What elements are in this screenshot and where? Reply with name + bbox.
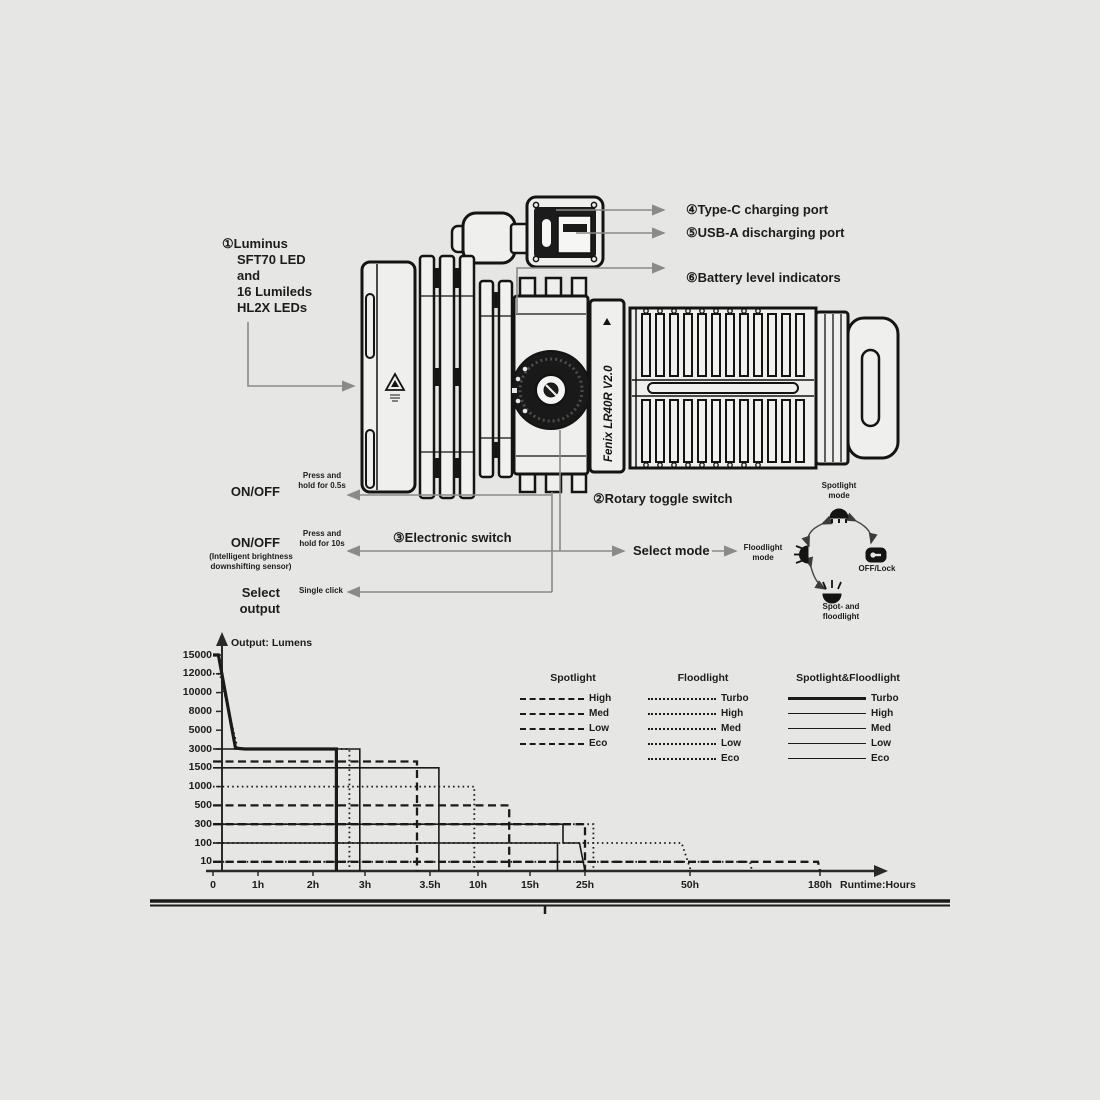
- rotary-toggle-dial: [512, 351, 590, 429]
- legend-entry: High: [520, 691, 626, 706]
- legend-swatch-dashed: [520, 698, 584, 700]
- legend-group-title: Spotlight: [520, 672, 626, 684]
- hold2-note: Press andhold for 10s: [294, 529, 350, 549]
- legend-entry: High: [788, 706, 908, 721]
- diagram-art: Fenix LR40R V2.0: [0, 0, 1100, 1100]
- legend-group-floodlight: FloodlightTurboHighMedLowEco: [648, 672, 758, 766]
- type-c-port-icon: [542, 219, 551, 247]
- y-tick-label: 10: [168, 855, 212, 868]
- x-tick-label: 180h: [802, 879, 838, 892]
- y-tick-label: 8000: [168, 705, 212, 718]
- onoff1-label: ON/OFF: [180, 484, 280, 500]
- electronic-callout: ③Electronic switch: [393, 530, 512, 546]
- legend-entry-label: Med: [871, 723, 891, 734]
- chart-axes: [206, 632, 888, 877]
- charging-module: [452, 197, 603, 267]
- dial-offlock-label: OFF/Lock: [846, 564, 908, 574]
- x-tick-label: 3h: [347, 879, 383, 892]
- legend-swatch-dotted: [648, 698, 716, 700]
- legend-entry-label: Low: [589, 723, 609, 734]
- legend-swatch-solid: [788, 758, 866, 759]
- led-callout-line3: and: [237, 268, 260, 284]
- x-tick-label: 10h: [460, 879, 496, 892]
- legend-entry: Low: [648, 736, 758, 751]
- series-line-spotlight-floodlight-med: [213, 768, 439, 871]
- legend-entry: Turbo: [648, 691, 758, 706]
- legend-entry-label: Eco: [721, 753, 739, 764]
- x-tick-label: 1h: [240, 879, 276, 892]
- legend-entry: Eco: [788, 751, 908, 766]
- legend-entry-label: Med: [589, 708, 609, 719]
- series-line-floodlight-eco: [213, 862, 752, 871]
- legend-entry-label: Low: [871, 738, 891, 749]
- legend-group-spotlight-floodlight: Spotlight&FloodlightTurboHighMedLowEco: [788, 672, 908, 766]
- bracket-slot: [862, 350, 879, 426]
- led-callout-line1: ①Luminus: [222, 236, 288, 252]
- legend-group-title: Floodlight: [648, 672, 758, 684]
- y-tick-label: 10000: [168, 686, 212, 699]
- hold1-note: Press andhold for 0.5s: [294, 471, 350, 491]
- legend-swatch-dotted: [648, 743, 716, 745]
- lock-icon: [866, 548, 886, 562]
- y-tick-label: 1000: [168, 780, 212, 793]
- rotary-callout: ②Rotary toggle switch: [593, 491, 733, 507]
- series-line-spotlight-high: [213, 762, 417, 872]
- legend-entry-label: High: [589, 693, 611, 704]
- legend-entry: High: [648, 706, 758, 721]
- legend-swatch-dashed: [520, 713, 584, 715]
- legend-entry: Low: [520, 721, 626, 736]
- legend-swatch-dotted: [648, 758, 716, 760]
- legend-entry: Med: [788, 721, 908, 736]
- series-line-spotlight-low: [213, 824, 585, 871]
- led-callout-line4: 16 Lumileds: [237, 284, 312, 300]
- legend-entry-label: Eco: [589, 738, 607, 749]
- type-c-callout: ④Type-C charging port: [686, 202, 828, 218]
- legend-entry: Turbo: [788, 691, 908, 706]
- select-output-label: Selectoutput: [180, 585, 280, 617]
- x-tick-label: 15h: [512, 879, 548, 892]
- series-line-spotlight-eco: [213, 862, 820, 871]
- spotlight-icon: [830, 509, 848, 523]
- series-line-floodlight-med: [213, 824, 593, 871]
- legend-entry: Med: [520, 706, 626, 721]
- floodlight-icon: [794, 546, 808, 563]
- onoff2-subnote: (Intelligent brightnessdownshifting sens…: [168, 552, 334, 572]
- dial-spotlight-label: Spotlightmode: [804, 481, 874, 501]
- dial-spotflood-label: Spot- andfloodlight: [808, 602, 874, 622]
- legend-entry-label: High: [871, 708, 893, 719]
- legend-entry-label: Low: [721, 738, 741, 749]
- legend-swatch-dashed: [520, 743, 584, 745]
- legend-swatch-dashed: [520, 728, 584, 730]
- usb-a-port-icon: [558, 216, 591, 253]
- dial-floodlight-label: Floodlightmode: [732, 543, 794, 563]
- legend-swatch-dotted: [648, 713, 716, 715]
- legend-entry-label: Turbo: [871, 693, 899, 704]
- usb-a-callout: ⑤USB-A discharging port: [686, 225, 845, 241]
- series-line-floodlight-low: [213, 843, 691, 871]
- legend-entry: Low: [788, 736, 908, 751]
- led-callout-line5: HL2X LEDs: [237, 300, 307, 316]
- y-tick-label: 300: [168, 818, 212, 831]
- x-tick-label: 50h: [672, 879, 708, 892]
- battery-body: [630, 308, 816, 468]
- switch-section: [512, 278, 590, 492]
- legend-swatch-dotted: [648, 728, 716, 730]
- legend-group-title: Spotlight&Floodlight: [788, 672, 908, 684]
- legend-entry-label: Turbo: [721, 693, 749, 704]
- legend-entry: Med: [648, 721, 758, 736]
- legend-entry-label: High: [721, 708, 743, 719]
- y-tick-label: 5000: [168, 724, 212, 737]
- y-tick-label: 1500: [168, 761, 212, 774]
- onoff2-label: ON/OFF: [180, 535, 280, 551]
- single-click-note: Single click: [292, 586, 350, 596]
- page-divider: [150, 901, 950, 914]
- y-tick-label: 100: [168, 837, 212, 850]
- tail-section: [816, 312, 898, 464]
- select-mode-label: Select mode: [633, 543, 710, 559]
- body-slot: [648, 383, 798, 393]
- legend-group-spotlight: SpotlightHighMedLowEco: [520, 672, 626, 751]
- x-tick-label: 3.5h: [412, 879, 448, 892]
- series-line-floodlight-high: [213, 787, 474, 871]
- mode-dial-diagram: [794, 509, 886, 603]
- legend-entry: Eco: [648, 751, 758, 766]
- flashlight-head: [362, 262, 415, 492]
- legend-entry-label: Med: [721, 723, 741, 734]
- series-line-spotlight-floodlight-eco: [213, 843, 558, 871]
- series-line-spotlight-floodlight-turbo: [213, 655, 336, 871]
- x-tick-label: 0: [195, 879, 231, 892]
- legend-swatch-solid: [788, 697, 866, 700]
- y-tick-label: 15000: [168, 649, 212, 662]
- y-tick-label: 12000: [168, 667, 212, 680]
- cooling-fins: [420, 256, 512, 498]
- series-line-spotlight-floodlight-low: [213, 824, 585, 871]
- branding-collar: Fenix LR40R V2.0: [590, 300, 624, 472]
- series-line-floodlight-turbo: [213, 674, 349, 871]
- legend-swatch-solid: [788, 728, 866, 729]
- spot-floodlight-icon: [823, 580, 841, 603]
- manual-page: Fenix LR40R V2.0: [0, 0, 1100, 1100]
- legend-entry: Eco: [520, 736, 626, 751]
- x-tick-label: 25h: [567, 879, 603, 892]
- legend-swatch-solid: [788, 743, 866, 744]
- y-tick-label: 500: [168, 799, 212, 812]
- battery-callout: ⑥Battery level indicators: [686, 270, 841, 286]
- chart-xlabel: Runtime:Hours: [840, 879, 916, 892]
- led-callout-line2: SFT70 LED: [237, 252, 306, 268]
- brand-text: Fenix LR40R V2.0: [603, 365, 615, 462]
- y-tick-label: 3000: [168, 743, 212, 756]
- x-tick-label: 2h: [295, 879, 331, 892]
- legend-swatch-solid: [788, 713, 866, 714]
- legend-entry-label: Eco: [871, 753, 889, 764]
- chart-title: Output: Lumens: [231, 637, 312, 650]
